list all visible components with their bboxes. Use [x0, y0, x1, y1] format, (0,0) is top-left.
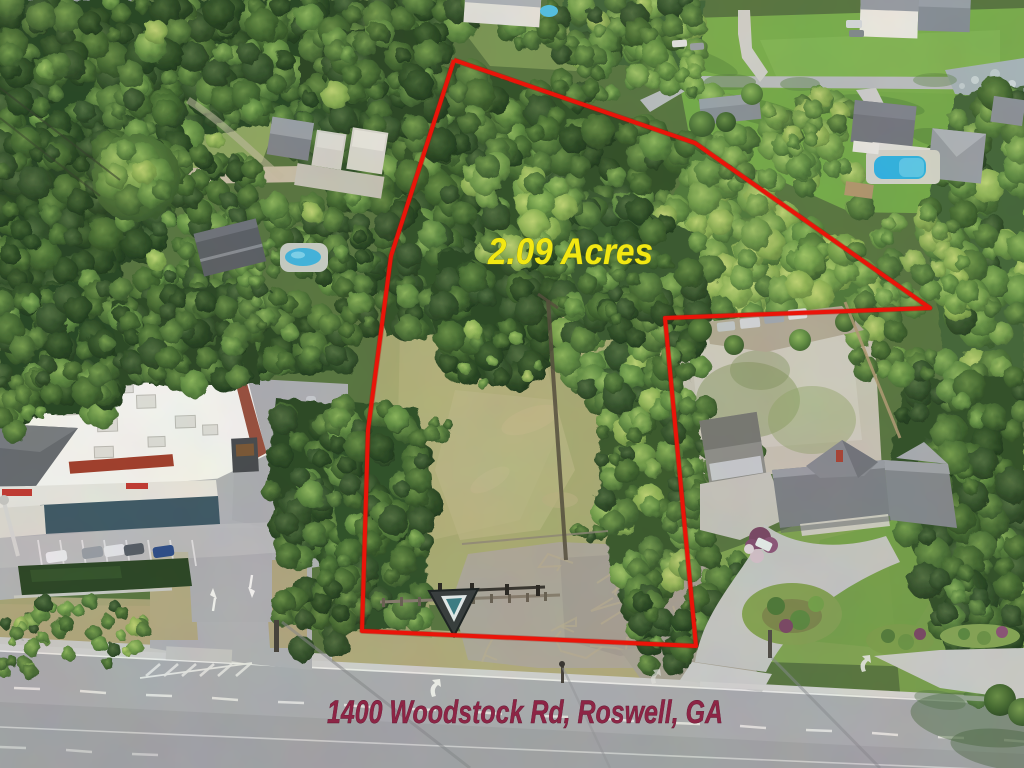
svg-text:2.09 Acres: 2.09 Acres	[487, 231, 653, 272]
svg-text:1400 Woodstock Rd, Roswell, GA: 1400 Woodstock Rd, Roswell, GA	[327, 694, 723, 730]
